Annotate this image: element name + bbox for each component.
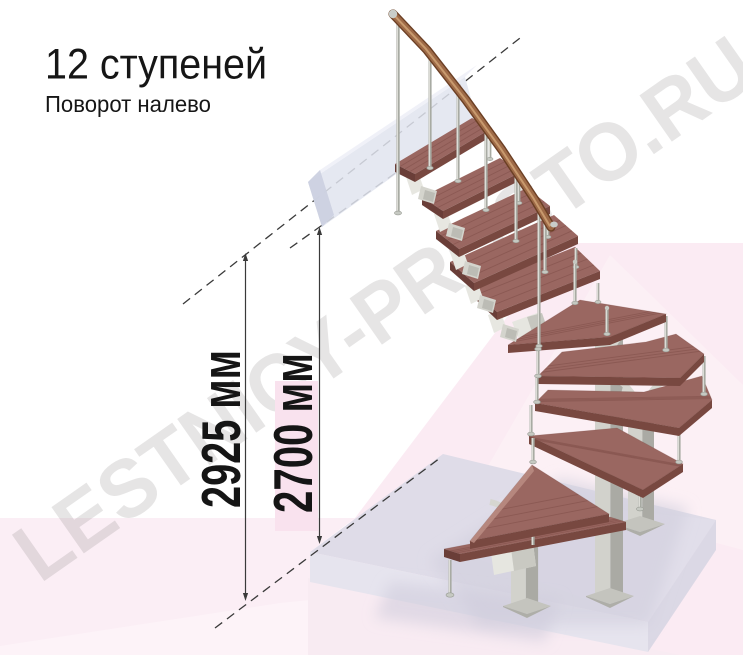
svg-text:Поворот налево: Поворот налево bbox=[45, 91, 211, 117]
svg-text:2925 мм: 2925 мм bbox=[190, 350, 252, 508]
svg-text:2700 мм: 2700 мм bbox=[262, 353, 324, 513]
svg-text:12 ступеней: 12 ступеней bbox=[45, 41, 267, 89]
